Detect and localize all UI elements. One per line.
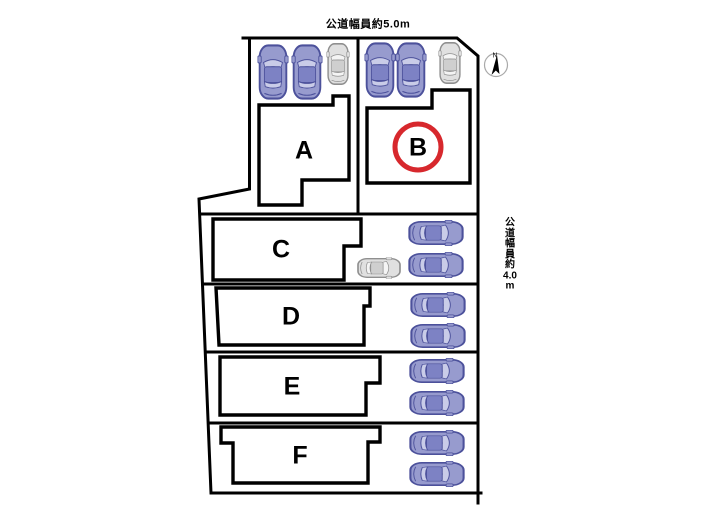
lot-label-d: D (282, 305, 300, 330)
north-label: N (492, 53, 497, 60)
blue-car-icon (410, 461, 463, 486)
blue-car-icon (410, 358, 463, 383)
blue-car-icon (411, 323, 464, 348)
blue-car-icon (409, 252, 462, 277)
lot-label-f: F (292, 444, 307, 469)
blue-car-icon (396, 43, 426, 96)
gray-car-icon (327, 44, 350, 84)
blue-car-icon (410, 430, 463, 455)
gray-car-icon (439, 43, 462, 83)
site-plan: 公道幅員約5.0m 公 道 幅 員 約 4.0 m N A B C D E F (0, 0, 705, 525)
blue-car-icon (365, 43, 395, 96)
blue-car-icon (410, 390, 463, 415)
lot-label-b: B (409, 136, 427, 161)
road-width-top-label: 公道幅員約5.0m (326, 20, 411, 31)
blue-car-icon (411, 292, 464, 317)
road-width-right-label: 公 道 幅 員 約 4.0 m (503, 218, 517, 292)
blue-car-icon (258, 45, 288, 98)
blue-car-icon (409, 220, 462, 245)
site-plan-svg (0, 0, 705, 525)
lot-label-c: C (272, 238, 290, 263)
blue-car-icon (292, 45, 322, 98)
lot-label-e: E (284, 375, 301, 400)
gray-car-icon (358, 257, 400, 278)
lot-label-a: A (295, 139, 313, 164)
